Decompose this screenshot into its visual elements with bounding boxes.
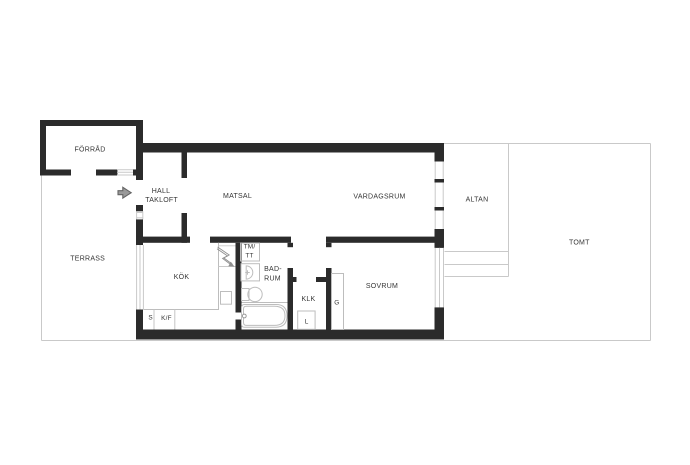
svg-text:G: G (334, 299, 339, 306)
svg-text:FÖRRÅD: FÖRRÅD (74, 144, 105, 153)
svg-text:RUM: RUM (264, 276, 281, 283)
svg-text:MATSAL: MATSAL (223, 193, 252, 200)
svg-text:K/F: K/F (161, 315, 172, 322)
svg-text:ALTAN: ALTAN (466, 197, 489, 204)
svg-text:TT: TT (245, 253, 253, 260)
svg-text:TAKLOFT: TAKLOFT (145, 197, 178, 204)
svg-text:HALL: HALL (152, 188, 171, 195)
svg-text:TM/: TM/ (244, 243, 256, 250)
svg-text:TOMT: TOMT (569, 239, 590, 246)
svg-text:TERRASS: TERRASS (70, 255, 105, 262)
svg-text:SOVRUM: SOVRUM (366, 283, 398, 290)
svg-text:S: S (148, 315, 152, 322)
svg-text:L: L (305, 318, 309, 325)
svg-text:KÖK: KÖK (174, 273, 190, 281)
svg-text:VARDAGSRUM: VARDAGSRUM (353, 193, 405, 200)
svg-text:KLK: KLK (302, 296, 316, 303)
svg-text:BAD-: BAD- (264, 266, 282, 273)
